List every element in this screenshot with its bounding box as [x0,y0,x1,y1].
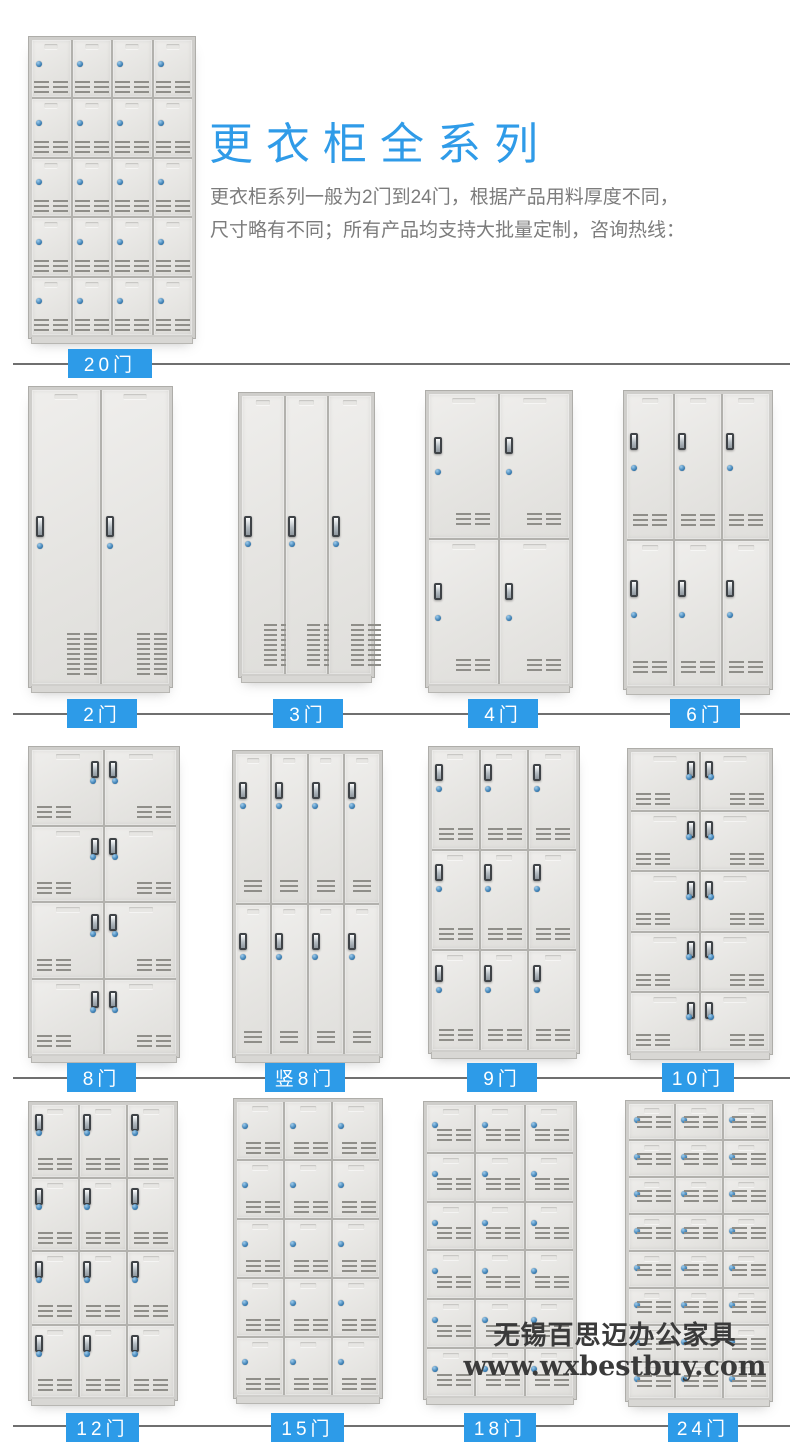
locker-door [32,390,100,684]
locker-door [676,1141,721,1176]
vent-slats [536,1029,551,1041]
vent-slats [546,659,561,671]
vent-slats [458,1029,473,1041]
name-card-slot [126,44,139,49]
vent-slats [732,1301,747,1313]
name-card-slot [545,855,561,860]
name-card-slot [642,545,658,550]
locker-door [80,1252,126,1324]
vent-grille [353,880,371,894]
vent-slats [700,661,715,673]
description-line-1: 更衣柜系列一般为2门到24门，根据产品用料厚度不同， [210,187,679,208]
vent-slats [527,513,542,525]
name-card-slot [723,937,746,942]
door-lock [432,1268,438,1274]
door-lock [36,1204,42,1210]
locker-door [427,1203,474,1250]
vent-grille [246,1378,280,1390]
vent-slats [156,806,171,818]
vent-slats [56,806,71,818]
vent-slats [636,853,651,865]
locker-door [113,218,152,275]
vent-slats [53,319,68,331]
door-handle [35,1261,43,1278]
door-lock [708,894,714,900]
door-count-badge-8men: 8门 [67,1063,136,1092]
name-card-slot [45,222,58,227]
vent-slats [153,1158,168,1170]
locker-door [285,1279,331,1336]
name-card-slot [739,1256,754,1261]
vent-slats [439,928,454,940]
door-lock [132,1277,138,1283]
vent-slats [749,1034,764,1046]
locker-door [675,541,721,686]
vent-slats [57,1305,72,1317]
door-lock [77,298,83,304]
door-lock [485,886,491,892]
name-card-slot [523,544,546,549]
vent-slats [137,806,152,818]
vent-slats [34,260,49,272]
locker-door [32,278,71,335]
vent-slats [636,1034,651,1046]
name-card-slot [447,754,463,759]
vent-grille [456,659,490,671]
vent-grille [535,1178,569,1190]
vent-slats [115,81,130,93]
door-handle [484,864,492,881]
locker-door [309,905,343,1054]
name-card-slot [45,163,58,168]
door-count-badge-10men: 10门 [662,1063,734,1092]
locker-door [272,754,306,903]
vent-slats [486,1276,501,1288]
door-lock [534,886,540,892]
locker-door [242,396,284,674]
name-card-slot [45,282,58,287]
vent-grille [637,1301,671,1313]
locker-door [476,1203,523,1250]
vent-grille [137,882,171,894]
vent-slats [732,1153,747,1165]
vent-slats [684,1264,699,1276]
locker-door [113,40,152,97]
vent-slats [53,260,68,272]
locker-door [73,159,112,216]
door-lock [349,803,355,809]
locker-door [154,278,193,335]
door-lock [485,987,491,993]
vent-slats [353,1031,371,1045]
vent-slats [86,1379,101,1391]
vent-grille [637,1153,671,1165]
vent-slats [637,1264,652,1276]
name-card-slot [723,756,746,761]
name-card-slot [143,1256,159,1261]
locker-door [333,1102,379,1159]
door-lock [531,1220,537,1226]
name-card-slot [690,398,706,403]
door-handle [533,864,541,881]
name-card-slot [739,1145,754,1150]
name-card-slot [691,1182,706,1187]
name-card-slot [443,1207,459,1212]
locker-door [32,218,71,275]
vent-grille [294,1142,328,1154]
vent-slats [681,514,696,526]
locker-door [481,851,528,950]
vent-grille [730,913,764,925]
vent-slats [75,319,90,331]
door-handle [131,1188,139,1205]
vent-slats [244,880,262,894]
vent-slats [655,853,670,865]
name-card-slot [443,1109,459,1114]
locker-door [627,541,673,686]
vent-slats [57,1158,72,1170]
name-card-slot [644,1293,659,1298]
vent-slats [507,928,522,940]
door-lock [158,298,164,304]
vent-slats [105,1232,120,1244]
locker-door [631,872,699,930]
door-lock [90,778,96,784]
vent-grille [134,1379,168,1391]
door-lock [708,834,714,840]
locker-image-2men [28,386,173,688]
vent-grille [730,793,764,805]
vent-slats [53,141,68,153]
name-card-slot [129,754,153,759]
name-card-slot [541,1207,557,1212]
door-handle [109,761,117,778]
locker-door [285,1102,331,1159]
vent-slats [313,1378,328,1390]
name-card-slot [739,1108,754,1113]
vent-slats [56,959,71,971]
vent-slats [53,81,68,93]
locker-door [105,827,176,902]
vent-slats [134,200,149,212]
door-handle [275,782,283,799]
vent-grille [684,1116,718,1128]
locker-door [500,540,569,684]
vent-grille [37,1035,71,1047]
vent-slats [175,141,190,153]
door-lock [240,954,246,960]
door-lock [117,239,123,245]
vent-slats [751,1227,766,1239]
vent-slats [703,1153,718,1165]
vent-slats [265,1142,280,1154]
name-card-slot [299,400,313,405]
locker-door [285,1338,331,1395]
door-lock [36,61,42,67]
locker-door [432,951,479,1050]
door-count-badge-4men: 4门 [468,699,538,728]
vent-slats [655,793,670,805]
door-count-badge-18men: 18门 [464,1413,536,1442]
name-card-slot [47,1109,63,1114]
door-lock [432,1220,438,1226]
vent-slats [153,1305,168,1317]
vent-slats [342,1142,357,1154]
door-lock [338,1300,344,1306]
vent-slats [536,828,551,840]
vent-grille [156,319,190,331]
door-lock [290,1123,296,1129]
vent-grille [75,81,109,93]
vent-slats [156,260,171,272]
vent-slats [105,1379,120,1391]
door-count-badge-12men: 12门 [66,1413,139,1442]
vent-slats [703,1301,718,1313]
vent-slats [280,880,298,894]
vent-grille [730,1034,764,1046]
vent-slats [456,659,471,671]
vent-slats [175,319,190,331]
door-lock [506,615,512,621]
locker-door [675,394,721,539]
vent-slats [637,1153,652,1165]
locker-door [32,903,103,978]
vent-slats [536,928,551,940]
door-lock [290,1182,296,1188]
watermark-website-url: www.wxbestbuy.com [446,1352,784,1382]
vent-slats [486,1178,501,1190]
vent-slats [175,81,190,93]
door-count-badge-20men: 20门 [68,349,152,378]
locker-door [629,1252,674,1287]
name-card-slot [738,398,754,403]
vent-grille [75,319,109,331]
vent-grille [536,928,570,940]
name-card-slot [85,222,98,227]
vent-slats [700,514,715,526]
locker-image-15men [233,1098,383,1399]
locker-door [237,1102,283,1159]
locker-doors-grid [242,396,371,674]
vent-slats [56,1035,71,1047]
locker-image-12men [28,1101,178,1401]
vent-slats [684,1227,699,1239]
locker-door [676,1178,721,1213]
locker-door [526,1154,573,1201]
vent-grille [732,1264,766,1276]
description-line-2: 尺寸略有不同；所有产品均支持大批量定制，咨询热线： [210,220,685,241]
name-card-slot [126,222,139,227]
vent-grille [437,1178,471,1190]
locker-doors-grid [432,750,576,1050]
vent-slats [488,1029,503,1041]
vent-grille [486,1276,520,1288]
name-card-slot [85,44,98,49]
vent-slats [342,1260,357,1272]
vent-slats [307,624,320,666]
locker-door [701,812,769,870]
name-card-slot [45,103,58,108]
vent-slats [486,1129,501,1141]
door-handle [505,437,513,454]
door-count-badge-3men: 3门 [273,699,343,728]
locker-door [32,40,71,97]
door-lock [482,1122,488,1128]
name-card-slot [300,1283,316,1288]
vent-grille [34,200,68,212]
vent-slats [703,1190,718,1202]
vent-slats [37,806,52,818]
vent-slats [527,659,542,671]
vent-slats [313,1142,328,1154]
vent-slats [652,661,667,673]
name-card-slot [653,937,676,942]
locker-door [432,851,479,950]
locker-door [333,1338,379,1395]
vent-grille [86,1379,120,1391]
door-lock [90,1007,96,1013]
vent-slats [317,1031,335,1045]
door-handle [484,764,492,781]
locker-door [629,1178,674,1213]
vent-slats [244,1031,262,1045]
door-lock [112,1007,118,1013]
vent-grille [280,1031,298,1045]
vent-grille [246,1201,280,1213]
door-lock [436,987,442,993]
vent-grille [34,260,68,272]
locker-door [73,99,112,156]
vent-grille [342,1201,376,1213]
name-card-slot [541,1109,557,1114]
door-count-badge-2men: 2门 [67,699,137,728]
vent-slats [655,913,670,925]
vent-slats [153,1379,168,1391]
vent-slats [156,1035,171,1047]
vent-slats [456,1129,471,1141]
door-lock [117,61,123,67]
vent-grille [34,141,68,153]
name-card-slot [47,1183,63,1188]
name-card-slot [54,394,77,399]
name-card-slot [95,1109,111,1114]
name-card-slot [644,1108,659,1113]
vent-grille [637,1264,671,1276]
vent-grille [115,81,149,93]
door-handle [726,433,734,450]
vent-slats [637,1116,652,1128]
vent-slats [437,1129,452,1141]
locker-door [105,750,176,825]
vent-grille [353,1031,371,1045]
door-handle [348,782,356,799]
door-count-badge-15men: 15门 [271,1413,344,1442]
locker-door [32,1326,78,1398]
locker-doors-grid [236,754,379,1054]
name-card-slot [443,1255,459,1260]
vent-slats [37,959,52,971]
door-handle [678,580,686,597]
vent-slats [37,882,52,894]
vent-slats [265,1319,280,1331]
vent-grille [535,1227,569,1239]
door-handle [83,1114,91,1131]
door-lock [117,120,123,126]
vent-slats [294,1201,309,1213]
door-lock [631,465,637,471]
vent-grille [294,1319,328,1331]
locker-door [32,1179,78,1251]
vent-slats [94,81,109,93]
door-lock [276,803,282,809]
vent-slats [294,1378,309,1390]
vent-grille [86,1158,120,1170]
vent-slats [637,1190,652,1202]
name-card-slot [443,1158,459,1163]
name-card-slot [496,955,512,960]
vent-slats [703,1116,718,1128]
door-lock [242,1123,248,1129]
vent-slats [655,1034,670,1046]
vent-slats [246,1142,261,1154]
vent-slats [313,1201,328,1213]
vent-grille [342,1319,376,1331]
door-lock [338,1123,344,1129]
locker-door [32,1252,78,1324]
vent-slats [437,1178,452,1190]
vent-slats [555,1029,570,1041]
name-card-slot [653,876,676,881]
locker-door [105,903,176,978]
vent-slats [656,1264,671,1276]
door-lock [349,954,355,960]
vent-slats [748,661,763,673]
locker-door [333,1279,379,1336]
door-lock [240,803,246,809]
door-lock [482,1220,488,1226]
name-card-slot [348,1342,364,1347]
locker-door [236,754,270,903]
door-lock [84,1277,90,1283]
locker-door [154,159,193,216]
vent-grille [439,928,473,940]
vent-slats [535,1129,550,1141]
name-card-slot [541,1255,557,1260]
vent-grille [456,513,490,525]
vent-slats [751,1153,766,1165]
locker-door [629,1289,674,1324]
door-lock [432,1122,438,1128]
vent-slats [456,1276,471,1288]
door-handle [435,764,443,781]
vent-slats [732,1116,747,1128]
door-handle [91,991,99,1008]
vent-grille [86,1232,120,1244]
locker-door [631,752,699,810]
name-card-slot [45,44,58,49]
vent-slats [749,853,764,865]
door-lock [36,1351,42,1357]
door-handle [239,782,247,799]
door-lock [686,774,692,780]
name-card-slot [124,394,147,399]
vent-slats [265,1201,280,1213]
vent-slats [134,260,149,272]
name-card-slot [653,816,676,821]
door-lock [36,120,42,126]
locker-door [427,1105,474,1152]
vent-slats [57,1232,72,1244]
